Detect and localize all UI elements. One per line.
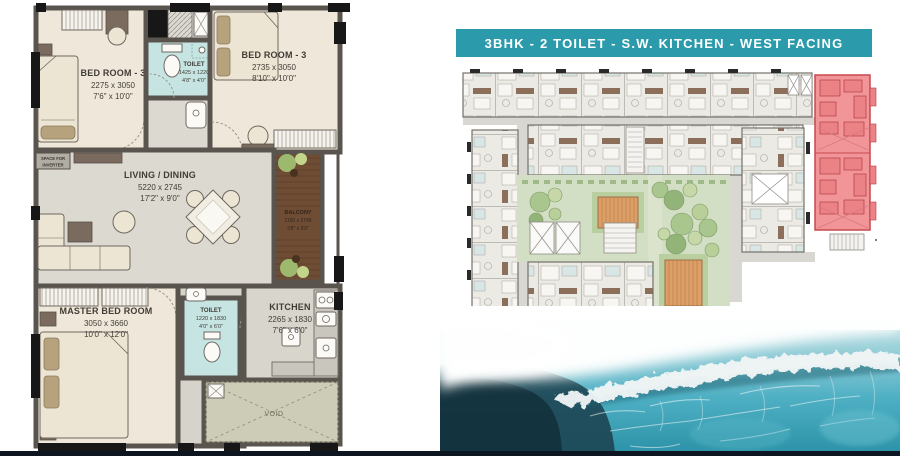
tv-console [74,153,122,163]
deck-pavilion [659,254,708,312]
kitchen-sink [316,338,336,358]
svg-text:SPACE FOR: SPACE FOR [41,156,65,161]
wardrobe [102,288,148,306]
balcony: BALCONY 1100 x 2745 3'8" x 9'0" [274,152,338,286]
room-dim-mm: 2265 x 1830 [268,315,313,324]
plan-title-banner: 3BHK - 2 TOILET - S.W. KITCHEN - WEST FA… [456,29,872,57]
bed [38,56,78,142]
room-label: BED ROOM - 3 [242,50,307,60]
coffee-table [68,222,92,242]
unit-floor-plan: BED ROOM - 3 2275 x 3050 7'6" x 10'0" TO… [28,0,378,452]
bottom-units-row [528,262,653,312]
svg-text:INVERTER: INVERTER [42,163,63,168]
wardrobe [274,130,336,148]
room-label: TOILET [200,308,222,314]
room-dim-ft: 8'10" x 10'0" [252,74,296,83]
duct-shaft [208,384,224,398]
toilet-top: TOILET 1425 x 1220 4'8" x 4'0" [146,40,210,98]
room-dim-ft: 10'0" x 12'0" [84,330,128,339]
duct-shaft [194,12,208,36]
bedroom-3-top-left: BED ROOM - 3 2275 x 3050 7'6" x 10'0" [36,8,146,150]
room-dim-mm: 2275 x 3050 [91,81,136,90]
room-dim-ft: 17'2" x 9'0" [140,194,180,203]
room-dim-ft: 7'6" x 10'0" [93,92,133,101]
wc-bowl [164,55,180,77]
nightstand [38,44,52,55]
room-dim-ft: 4'8" x 4'0" [182,78,206,84]
key-plan-highlighted-unit [815,75,877,250]
kitchen: KITCHEN 2265 x 1830 7'6" x 6'0" [244,286,340,380]
stairwell [830,234,877,250]
nightstand [40,312,56,326]
void-label: VOID [264,411,283,418]
inverter-space-tag: SPACE FOR INVERTER [36,153,70,169]
wc-bowl [204,342,220,362]
bedroom-3-top-right: BED ROOM - 3 2735 x 3050 8'10" x 10'0" [210,8,340,152]
top-units-row [463,69,812,117]
shower-icon [199,47,205,53]
room-dim-mm: 1220 x 1830 [196,316,226,322]
wash-basin [186,288,206,301]
kitchen-counter [272,362,314,376]
room-label: BED ROOM - 3 [81,68,146,78]
master-bedroom: MASTER BED ROOM 3050 x 3660 10'0" x 12'0… [36,286,178,446]
wardrobe [40,288,98,306]
room-label: LIVING / DINING [124,170,196,180]
living-dining: SPACE FOR INVERTER LIVING / DINING 5220 … [36,150,274,286]
dresser-chair [108,27,126,45]
bottom-border-bar [0,451,900,456]
void-area: VOID [204,380,340,444]
wc-cistern [162,44,182,52]
wardrobe [62,10,102,30]
room-dim-mm: 3050 x 3660 [84,319,129,328]
left-units-column [467,130,518,308]
room-label: KITCHEN [269,302,310,312]
room-dim-ft: 3'8" x 9'0" [287,226,309,232]
room-dim-mm: 1100 x 2745 [284,218,311,224]
brochure-page: { "header": { "title": "3BHK - 2 TOILET … [0,0,900,456]
room-dim-ft: 4'0" x 6'0" [199,324,223,330]
key-plan [452,62,896,312]
dining-set [186,190,240,244]
ocean-wave-image [440,306,900,452]
room-dim-mm: 2735 x 3050 [252,63,297,72]
room-dim-mm: 5220 x 2745 [138,183,183,192]
room-dim-mm: 1425 x 1220 [179,70,209,76]
room-dim-ft: 7'6" x 6'0" [273,326,308,335]
stairwell [626,127,644,173]
room-label: MASTER BED ROOM [60,306,153,316]
plan-title-text: 3BHK - 2 TOILET - S.W. KITCHEN - WEST FA… [485,36,844,51]
armchair [113,211,135,233]
bed [40,332,128,438]
room-label: BALCONY [284,210,312,216]
wash-basin [186,102,206,128]
dresser-chair [248,126,268,146]
right-units-cluster [742,128,810,252]
wc-cistern [204,332,220,339]
room-label: TOILET [183,62,205,68]
